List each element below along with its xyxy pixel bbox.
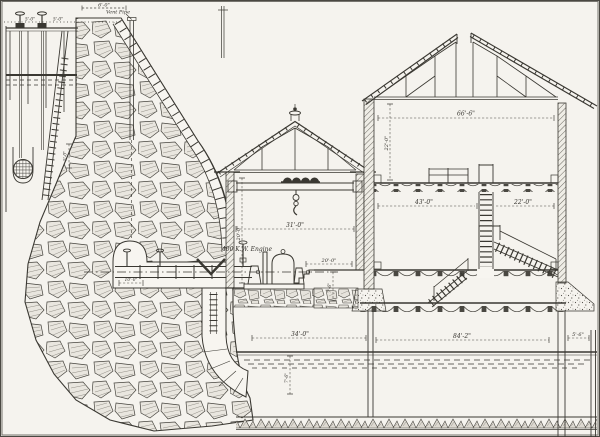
dim-crest-width: 6'-0": [98, 3, 110, 9]
dim-intake-depth: 5'-0": [64, 151, 69, 161]
dim-bay-left: 43'-0": [414, 199, 433, 206]
vent-pipe-label: Vent Pipe: [106, 10, 130, 16]
engine-label: 400 K.W. Engine: [221, 246, 273, 253]
channel-bed-riprap: [236, 418, 597, 429]
engineering-section-drawing: 6'-0" 5'-0" 5'-0" Vent Pipe 5'-0" 10'-0"…: [0, 0, 600, 437]
dim-gate-b: 5'-0": [53, 18, 63, 23]
basement-floor: [360, 303, 566, 312]
second-floor: [374, 183, 558, 192]
mill-left-wall: [364, 99, 374, 289]
dim-engine-height: 20'-0": [236, 226, 242, 242]
dim-engine-span: 31'-0": [286, 222, 304, 229]
dim-tail-main: 84'-2": [453, 333, 471, 340]
dim-tail-left: 34'-0": [291, 331, 309, 338]
dim-bay-right: 22'-0": [513, 199, 532, 206]
dim-basement-span: 20'-0": [321, 258, 337, 264]
basement-foundation: [314, 288, 358, 308]
engine-foundation: [233, 289, 314, 307]
engine-room-right-wall: [356, 174, 364, 270]
dim-gate-a: 5'-0": [25, 18, 35, 23]
dim-tail-right: 5'-6": [572, 332, 584, 338]
dim-basement-height: 7'-6": [328, 283, 333, 293]
engine-room-left-wall: [226, 172, 234, 288]
dim-gallery-width: 10'-0": [125, 278, 138, 283]
drawing-canvas: 6'-0" 5'-0" 5'-0" Vent Pipe 5'-0" 10'-0"…: [0, 0, 600, 437]
dim-mill-height: 22'-0": [384, 136, 390, 152]
dim-mill-span: 66'-6": [457, 111, 475, 118]
dim-tail-depth: 7'-6": [285, 373, 290, 383]
mill-right-wall: [558, 103, 566, 283]
